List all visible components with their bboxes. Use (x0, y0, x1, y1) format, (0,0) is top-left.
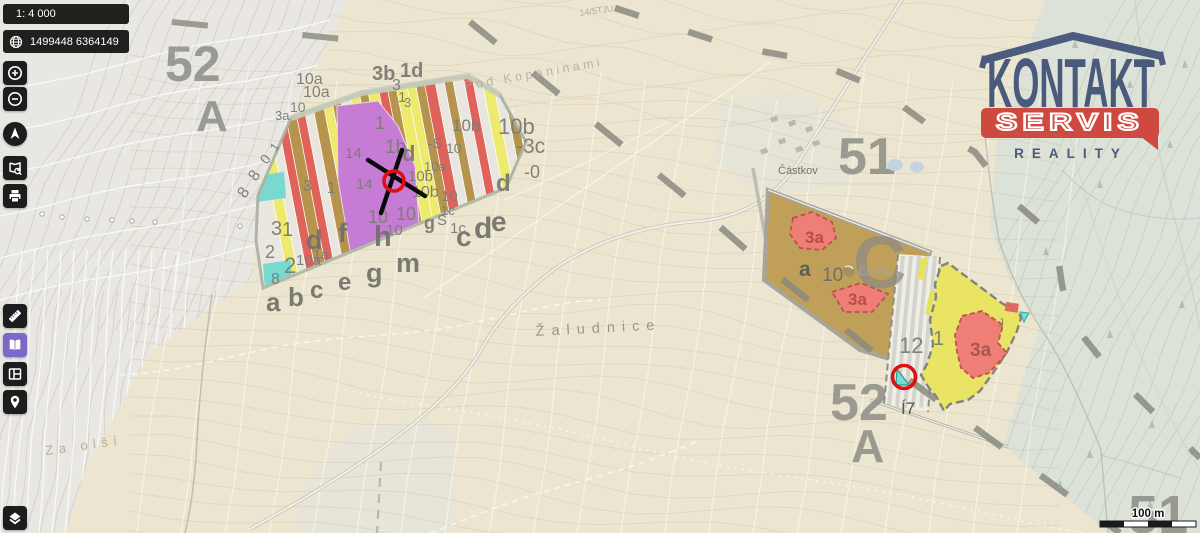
svg-text:1: 1 (933, 328, 944, 350)
svg-text:1a: 1a (313, 246, 329, 262)
svg-text:3: 3 (404, 95, 411, 110)
svg-text:a: a (266, 287, 281, 317)
svg-text:10: 10 (290, 99, 306, 115)
svg-text:14: 14 (356, 176, 373, 193)
svg-text:2: 2 (284, 253, 296, 278)
svg-text:3a: 3a (848, 290, 867, 309)
svg-text:12: 12 (899, 333, 923, 358)
svg-text:3: 3 (271, 218, 282, 240)
svg-text:d: d (402, 141, 415, 166)
svg-text:f: f (338, 218, 348, 248)
svg-text:a: a (799, 258, 811, 281)
svg-text:A: A (851, 420, 884, 472)
svg-text:10: 10 (446, 140, 462, 156)
svg-text:10a: 10a (424, 159, 446, 174)
svg-text:100 m: 100 m (1132, 508, 1165, 520)
svg-text:c: c (310, 277, 323, 304)
svg-text:REALITY: REALITY (1014, 146, 1128, 161)
svg-text:-3c: -3c (516, 135, 545, 158)
svg-text:-0: -0 (524, 162, 540, 182)
svg-text:3a: 3a (805, 228, 824, 247)
svg-text:SERVIS: SERVIS (996, 109, 1144, 136)
svg-text:1: 1 (327, 180, 336, 197)
svg-text:51: 51 (838, 128, 896, 186)
svg-text:52: 52 (165, 36, 221, 92)
svg-text:3: 3 (303, 178, 312, 195)
svg-text:e: e (491, 206, 507, 237)
svg-text:d: d (474, 212, 492, 245)
svg-text:Í7: Í7 (901, 399, 915, 418)
svg-text:1c: 1c (450, 220, 466, 237)
svg-text:10: 10 (386, 222, 403, 239)
svg-text:e: e (338, 269, 351, 296)
svg-text:g: g (366, 258, 383, 288)
svg-text:10b: 10b (452, 116, 480, 135)
svg-text:m: m (396, 248, 420, 278)
svg-text:14: 14 (345, 145, 362, 162)
svg-text:d: d (496, 170, 511, 197)
svg-text:1: 1 (282, 219, 293, 241)
svg-text:10a: 10a (303, 84, 330, 101)
svg-text:1c: 1c (441, 203, 455, 218)
svg-text:3a: 3a (970, 340, 992, 361)
svg-text:-S: -S (428, 135, 442, 151)
svg-text:A: A (196, 92, 228, 141)
svg-text:ČÚZK: ČÚZK (858, 264, 892, 279)
svg-text:8: 8 (271, 271, 280, 288)
svg-text:J: J (998, 316, 1004, 330)
svg-text:3a: 3a (275, 108, 290, 123)
svg-text:1d: 1d (400, 60, 423, 82)
svg-text:Částkov: Částkov (778, 164, 818, 177)
svg-text:g: g (424, 213, 435, 233)
svg-text:10: 10 (822, 265, 843, 286)
svg-text:10: 10 (396, 204, 416, 224)
svg-text:1: 1 (375, 113, 385, 133)
svg-text:b: b (288, 282, 304, 312)
svg-text:2: 2 (265, 242, 275, 262)
